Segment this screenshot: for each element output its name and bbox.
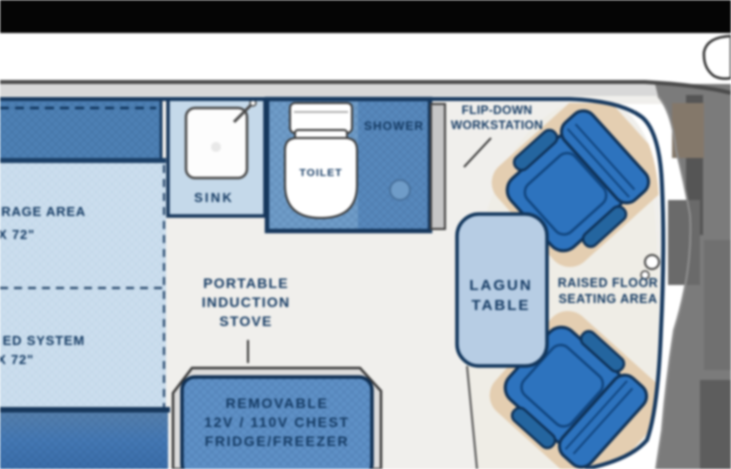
svg-text:LAGUN: LAGUN (469, 277, 532, 294)
svg-text:REMOVABLE: REMOVABLE (226, 395, 329, 411)
svg-text:FLIP-DOWN: FLIP-DOWN (462, 103, 533, 117)
svg-text:WORKSTATION: WORKSTATION (451, 118, 543, 132)
svg-text:FRIDGE/FREEZER: FRIDGE/FREEZER (205, 433, 350, 449)
svg-text:TOILET: TOILET (299, 167, 342, 179)
svg-text:SINK: SINK (194, 190, 234, 205)
svg-text:SHOWER: SHOWER (364, 119, 424, 133)
svg-text:PORTABLE: PORTABLE (203, 275, 289, 291)
svg-text:X 72": X 72" (0, 352, 34, 367)
svg-text:STOVE: STOVE (219, 313, 272, 329)
svg-text:ED SYSTEM: ED SYSTEM (3, 333, 85, 348)
svg-text:X 72": X 72" (0, 227, 35, 242)
svg-text:RAGE AREA: RAGE AREA (1, 204, 86, 219)
svg-text:12V / 110V CHEST: 12V / 110V CHEST (204, 414, 349, 430)
svg-text:INDUCTION: INDUCTION (202, 294, 291, 310)
svg-text:RAISED FLOOR: RAISED FLOOR (558, 276, 658, 290)
svg-text:TABLE: TABLE (472, 297, 531, 314)
svg-text:SEATING AREA: SEATING AREA (558, 292, 657, 306)
